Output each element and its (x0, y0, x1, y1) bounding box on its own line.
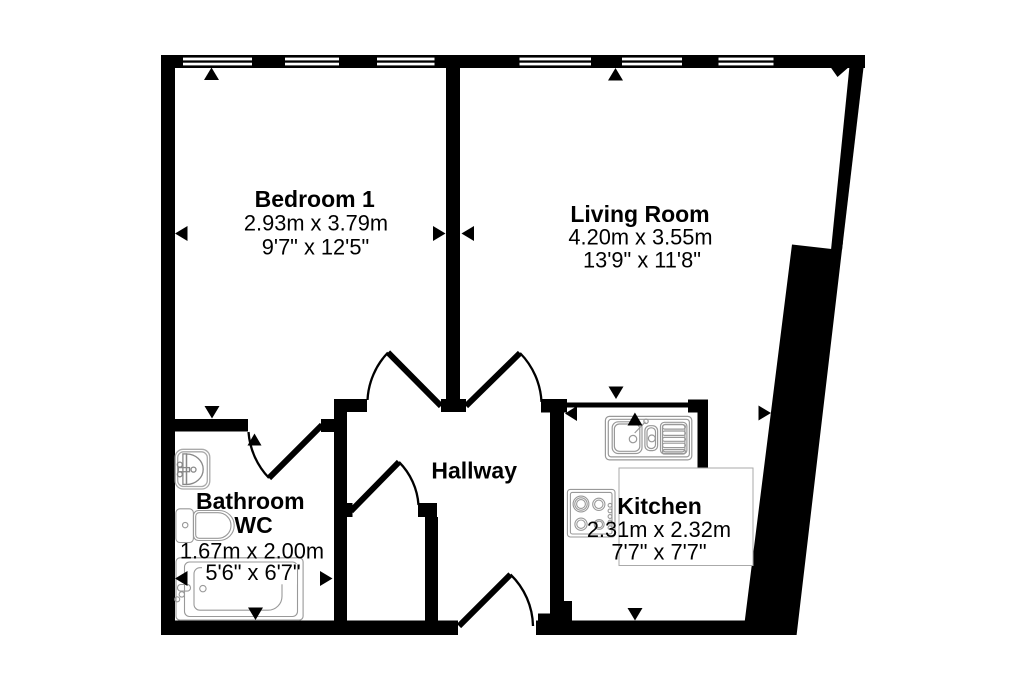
svg-text:2.31m x 2.32m: 2.31m x 2.32m (587, 517, 731, 542)
svg-text:4.20m x 3.55m: 4.20m x 3.55m (568, 225, 712, 250)
svg-text:5'6" x 6'7": 5'6" x 6'7" (205, 560, 300, 585)
svg-text:Bedroom 1: Bedroom 1 (255, 186, 375, 212)
svg-text:Hallway: Hallway (431, 458, 517, 484)
svg-text:Living Room: Living Room (570, 201, 709, 227)
svg-text:WC: WC (234, 512, 272, 538)
svg-text:Kitchen: Kitchen (617, 493, 701, 519)
svg-text:7'7" x 7'7": 7'7" x 7'7" (611, 540, 706, 565)
svg-text:13'9" x 11'8": 13'9" x 11'8" (583, 248, 701, 273)
svg-text:2.93m x 3.79m: 2.93m x 3.79m (244, 211, 388, 236)
svg-text:9'7" x 12'5": 9'7" x 12'5" (262, 235, 369, 260)
svg-text:Bathroom: Bathroom (196, 488, 305, 514)
